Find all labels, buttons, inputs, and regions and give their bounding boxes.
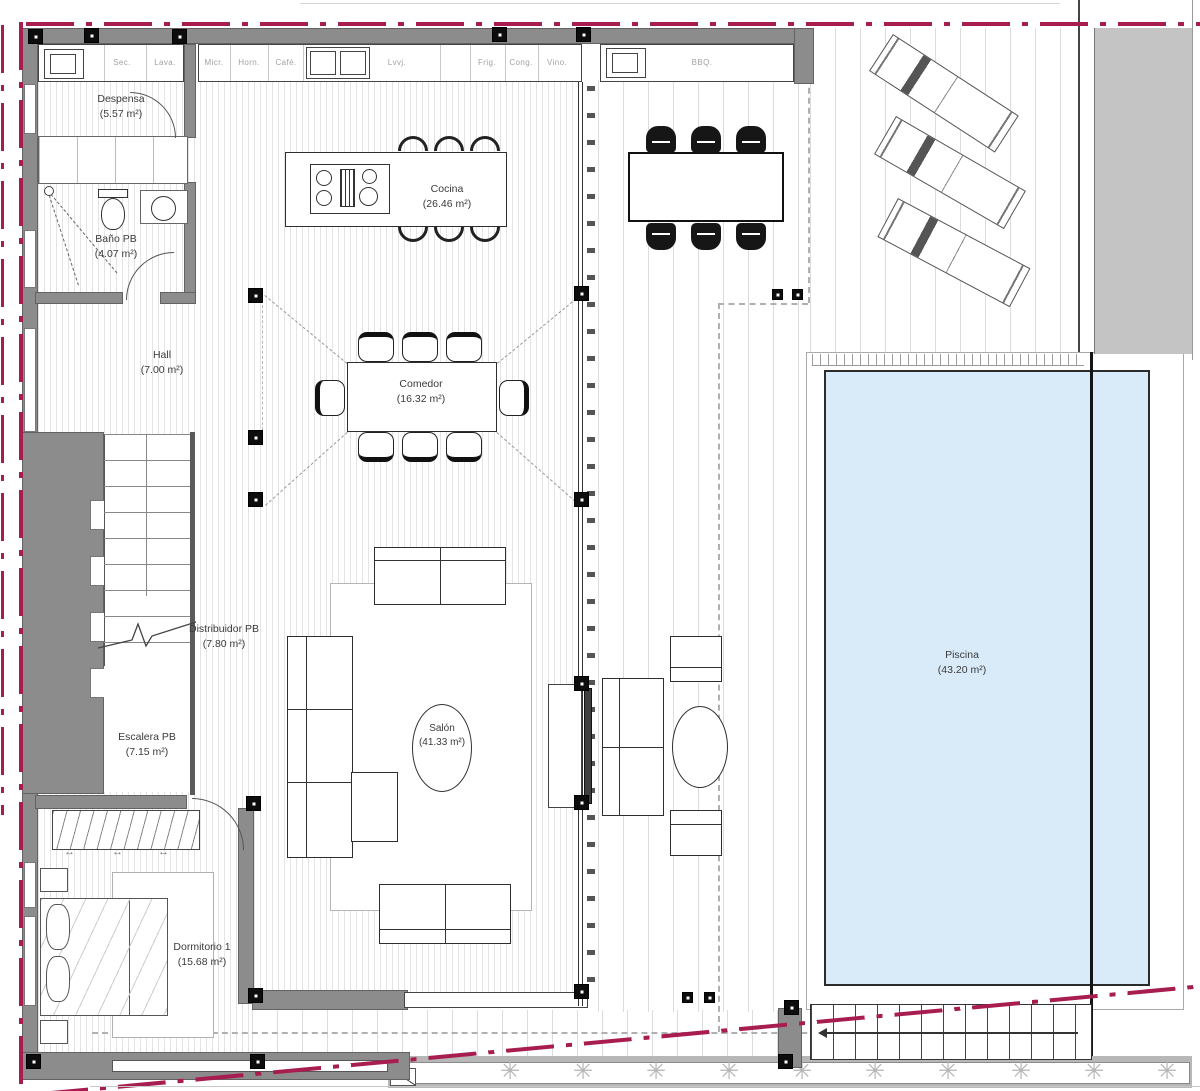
column <box>772 289 783 300</box>
column <box>248 988 263 1003</box>
counter-divider <box>303 45 304 81</box>
pool-water <box>824 370 1150 986</box>
window <box>24 230 36 288</box>
room-label-despensa: Despensa (5.57 m²) <box>97 92 144 121</box>
appliance-label-lvvj: Lvvj. <box>388 58 406 67</box>
stair-center-line <box>146 434 147 596</box>
stair-direction-arrowhead <box>818 1028 827 1038</box>
window <box>24 84 36 134</box>
outdoor-chair <box>736 223 766 250</box>
pool-cut-line <box>1090 352 1093 1064</box>
room-label-cocina: Cocina (26.46 m²) <box>423 182 471 211</box>
room-name: Piscina <box>938 648 986 663</box>
room-area: (41.33 m²) <box>419 736 465 750</box>
pool-deck-grate <box>812 354 1084 366</box>
column <box>172 29 187 44</box>
outdoor-chair <box>646 126 676 153</box>
room-name: Hall <box>141 348 184 363</box>
column <box>576 27 591 42</box>
counter-divider <box>505 45 506 81</box>
counter-divider <box>440 45 441 81</box>
room-name: Salón <box>419 722 465 736</box>
page-edge-line-top <box>300 3 1060 4</box>
hall-ceiling-dash <box>262 300 263 430</box>
dining-chair <box>499 380 529 416</box>
column <box>784 1000 799 1015</box>
toilet <box>101 198 125 230</box>
plant-icon: ✳ <box>719 1060 739 1084</box>
plant-icon: ✳ <box>1157 1060 1177 1084</box>
column <box>574 795 589 810</box>
column <box>28 29 43 44</box>
window <box>24 328 36 432</box>
despensa-divider-wall <box>184 44 196 138</box>
sliding-door-arrow-icon: ↔ <box>112 846 123 858</box>
counter-divider <box>268 45 269 81</box>
outdoor-chair <box>736 126 766 153</box>
hob-burner <box>359 187 378 206</box>
plant-icon: ✳ <box>1084 1060 1104 1084</box>
appliance-label-cong: Cong. <box>509 58 532 67</box>
room-area: (16.32 m²) <box>397 392 445 407</box>
column <box>26 1054 41 1069</box>
north-wall <box>35 28 814 44</box>
bedroom-north-wall <box>35 795 187 809</box>
room-area: (15.68 m²) <box>173 955 230 970</box>
dining-chair <box>446 432 482 462</box>
hob-burner <box>316 190 332 206</box>
sofa-two-seat <box>379 884 511 944</box>
appliance-label-sec: Sec. <box>113 58 131 67</box>
hob-grill <box>340 169 355 207</box>
floor-plan: ✳ ✳ ✳ ✳ ✳ ✳ ✳ ✳ ✳ ✳ <box>0 0 1200 1091</box>
plant-icon: ✳ <box>500 1060 520 1084</box>
dining-chair <box>402 432 438 462</box>
page-edge-line-bottom <box>90 1086 1200 1087</box>
outdoor-chair <box>691 126 721 153</box>
glass-wall-ticks <box>587 86 595 992</box>
tv-console <box>548 684 582 808</box>
column <box>574 984 589 999</box>
shower-head <box>44 186 54 196</box>
right-gray-band <box>1094 28 1192 354</box>
column <box>84 28 99 43</box>
room-name: Distribuidor PB <box>189 622 259 637</box>
column <box>492 27 507 42</box>
room-area: (43.20 m²) <box>938 663 986 678</box>
salon-south-wall <box>252 990 408 1010</box>
room-label-comedor: Comedor (16.32 m²) <box>397 377 445 406</box>
room-label-distribuidor: Distribuidor PB (7.80 m²) <box>189 622 259 651</box>
room-area: (26.46 m²) <box>423 197 471 212</box>
pillow <box>46 904 70 950</box>
wardrobe <box>52 810 200 850</box>
salon-south-window <box>404 992 588 1008</box>
dining-chair <box>315 380 345 416</box>
room-label-piscina: Piscina (43.20 m²) <box>938 648 986 677</box>
room-name: Cocina <box>423 182 471 197</box>
stair-break-line <box>98 612 198 658</box>
room-name: Escalera PB <box>118 730 176 745</box>
room-label-bano: Baño PB (4.07 m²) <box>95 232 138 261</box>
column <box>574 492 589 507</box>
sink-basin <box>340 51 366 75</box>
dining-chair <box>358 432 394 462</box>
stair-direction-line <box>826 1032 1078 1034</box>
bath-south-wall <box>35 292 123 304</box>
overhang-dash-corner <box>718 303 808 305</box>
room-label-hall: Hall (7.00 m²) <box>141 348 184 377</box>
boundary-line-top <box>26 22 1200 26</box>
room-area: (7.80 m²) <box>189 637 259 652</box>
column <box>682 992 693 1003</box>
hob-burner <box>316 170 332 186</box>
window <box>24 916 36 1006</box>
bbq-dining-table <box>628 152 784 222</box>
column <box>248 288 263 303</box>
dining-chair <box>358 332 394 362</box>
room-area: (4.07 m²) <box>95 247 138 262</box>
room-name: Despensa <box>97 92 144 107</box>
right-margin-line <box>1192 0 1193 360</box>
plant-icon: ✳ <box>1011 1060 1031 1084</box>
room-label-escalera: Escalera PB (7.15 m²) <box>118 730 176 759</box>
column <box>250 1054 265 1069</box>
appliance-label-frig: Frig. <box>478 58 496 67</box>
dining-chair <box>446 332 482 362</box>
appliance-label-micr: Micr. <box>205 58 224 67</box>
column <box>704 992 715 1003</box>
pillow <box>46 956 70 1002</box>
sofa-chaise <box>351 772 398 842</box>
room-name: Baño PB <box>95 232 138 247</box>
room-area: (7.00 m²) <box>141 363 184 378</box>
window <box>24 862 36 908</box>
nightstand <box>40 1020 68 1044</box>
appliance-label-cafe: Café. <box>275 58 296 67</box>
stair-landing <box>104 666 190 792</box>
outdoor-chair <box>691 223 721 250</box>
appliance-label-bbq: BBQ. <box>692 58 713 67</box>
dining-chair <box>402 332 438 362</box>
outdoor-armchair <box>670 810 722 856</box>
room-name: Dormitorio 1 <box>173 940 230 955</box>
room-label-dormitorio: Dormitorio 1 (15.68 m²) <box>173 940 230 969</box>
sofa-l-shape <box>287 636 353 858</box>
column <box>792 289 803 300</box>
outdoor-chair <box>646 223 676 250</box>
glass-wall <box>578 82 583 1006</box>
sliding-door-arrow-icon: ↔ <box>64 846 75 858</box>
bbq-sink-basin <box>612 53 638 73</box>
bath-basin <box>151 196 176 221</box>
room-label-salon: Salón (41.33 m²) <box>419 722 465 750</box>
room-area: (5.57 m²) <box>97 107 144 122</box>
appliance-label-lava: Lava. <box>154 58 176 67</box>
column <box>574 286 589 301</box>
room-area: (7.15 m²) <box>118 745 176 760</box>
room-name: Comedor <box>397 377 445 392</box>
bbq-right-wall <box>794 28 814 84</box>
plant-icon: ✳ <box>646 1060 666 1084</box>
plot-edge-line <box>1078 0 1080 352</box>
plant-icon: ✳ <box>573 1060 593 1084</box>
appliance-label-vino: Vino. <box>547 58 567 67</box>
column <box>778 1054 793 1069</box>
counter-divider <box>470 45 471 81</box>
sofa-two-seat <box>374 547 506 605</box>
column <box>248 492 263 507</box>
sink-basin <box>310 51 336 75</box>
counter-divider <box>104 45 105 81</box>
counter-divider <box>230 45 231 81</box>
counter-divider <box>146 45 147 81</box>
tv <box>584 688 592 804</box>
plant-icon: ✳ <box>865 1060 885 1084</box>
nightstand <box>40 868 68 892</box>
plant-icon: ✳ <box>938 1060 958 1084</box>
column <box>574 676 589 691</box>
hob-burner <box>362 169 377 184</box>
outdoor-coffee-table <box>672 706 728 788</box>
boundary-line-left <box>19 22 23 1084</box>
outdoor-armchair <box>670 636 722 682</box>
toilet-tank <box>98 189 128 198</box>
utility-sink-basin <box>50 54 76 74</box>
column <box>248 430 263 445</box>
boundary-line-far-left <box>1 25 4 815</box>
counter-divider <box>538 45 539 81</box>
outdoor-sofa <box>602 678 664 816</box>
despensa-shelves <box>38 136 188 184</box>
column <box>246 796 261 811</box>
appliance-label-horn: Horn. <box>238 58 260 67</box>
sliding-door-arrow-icon: ↔ <box>158 846 169 858</box>
